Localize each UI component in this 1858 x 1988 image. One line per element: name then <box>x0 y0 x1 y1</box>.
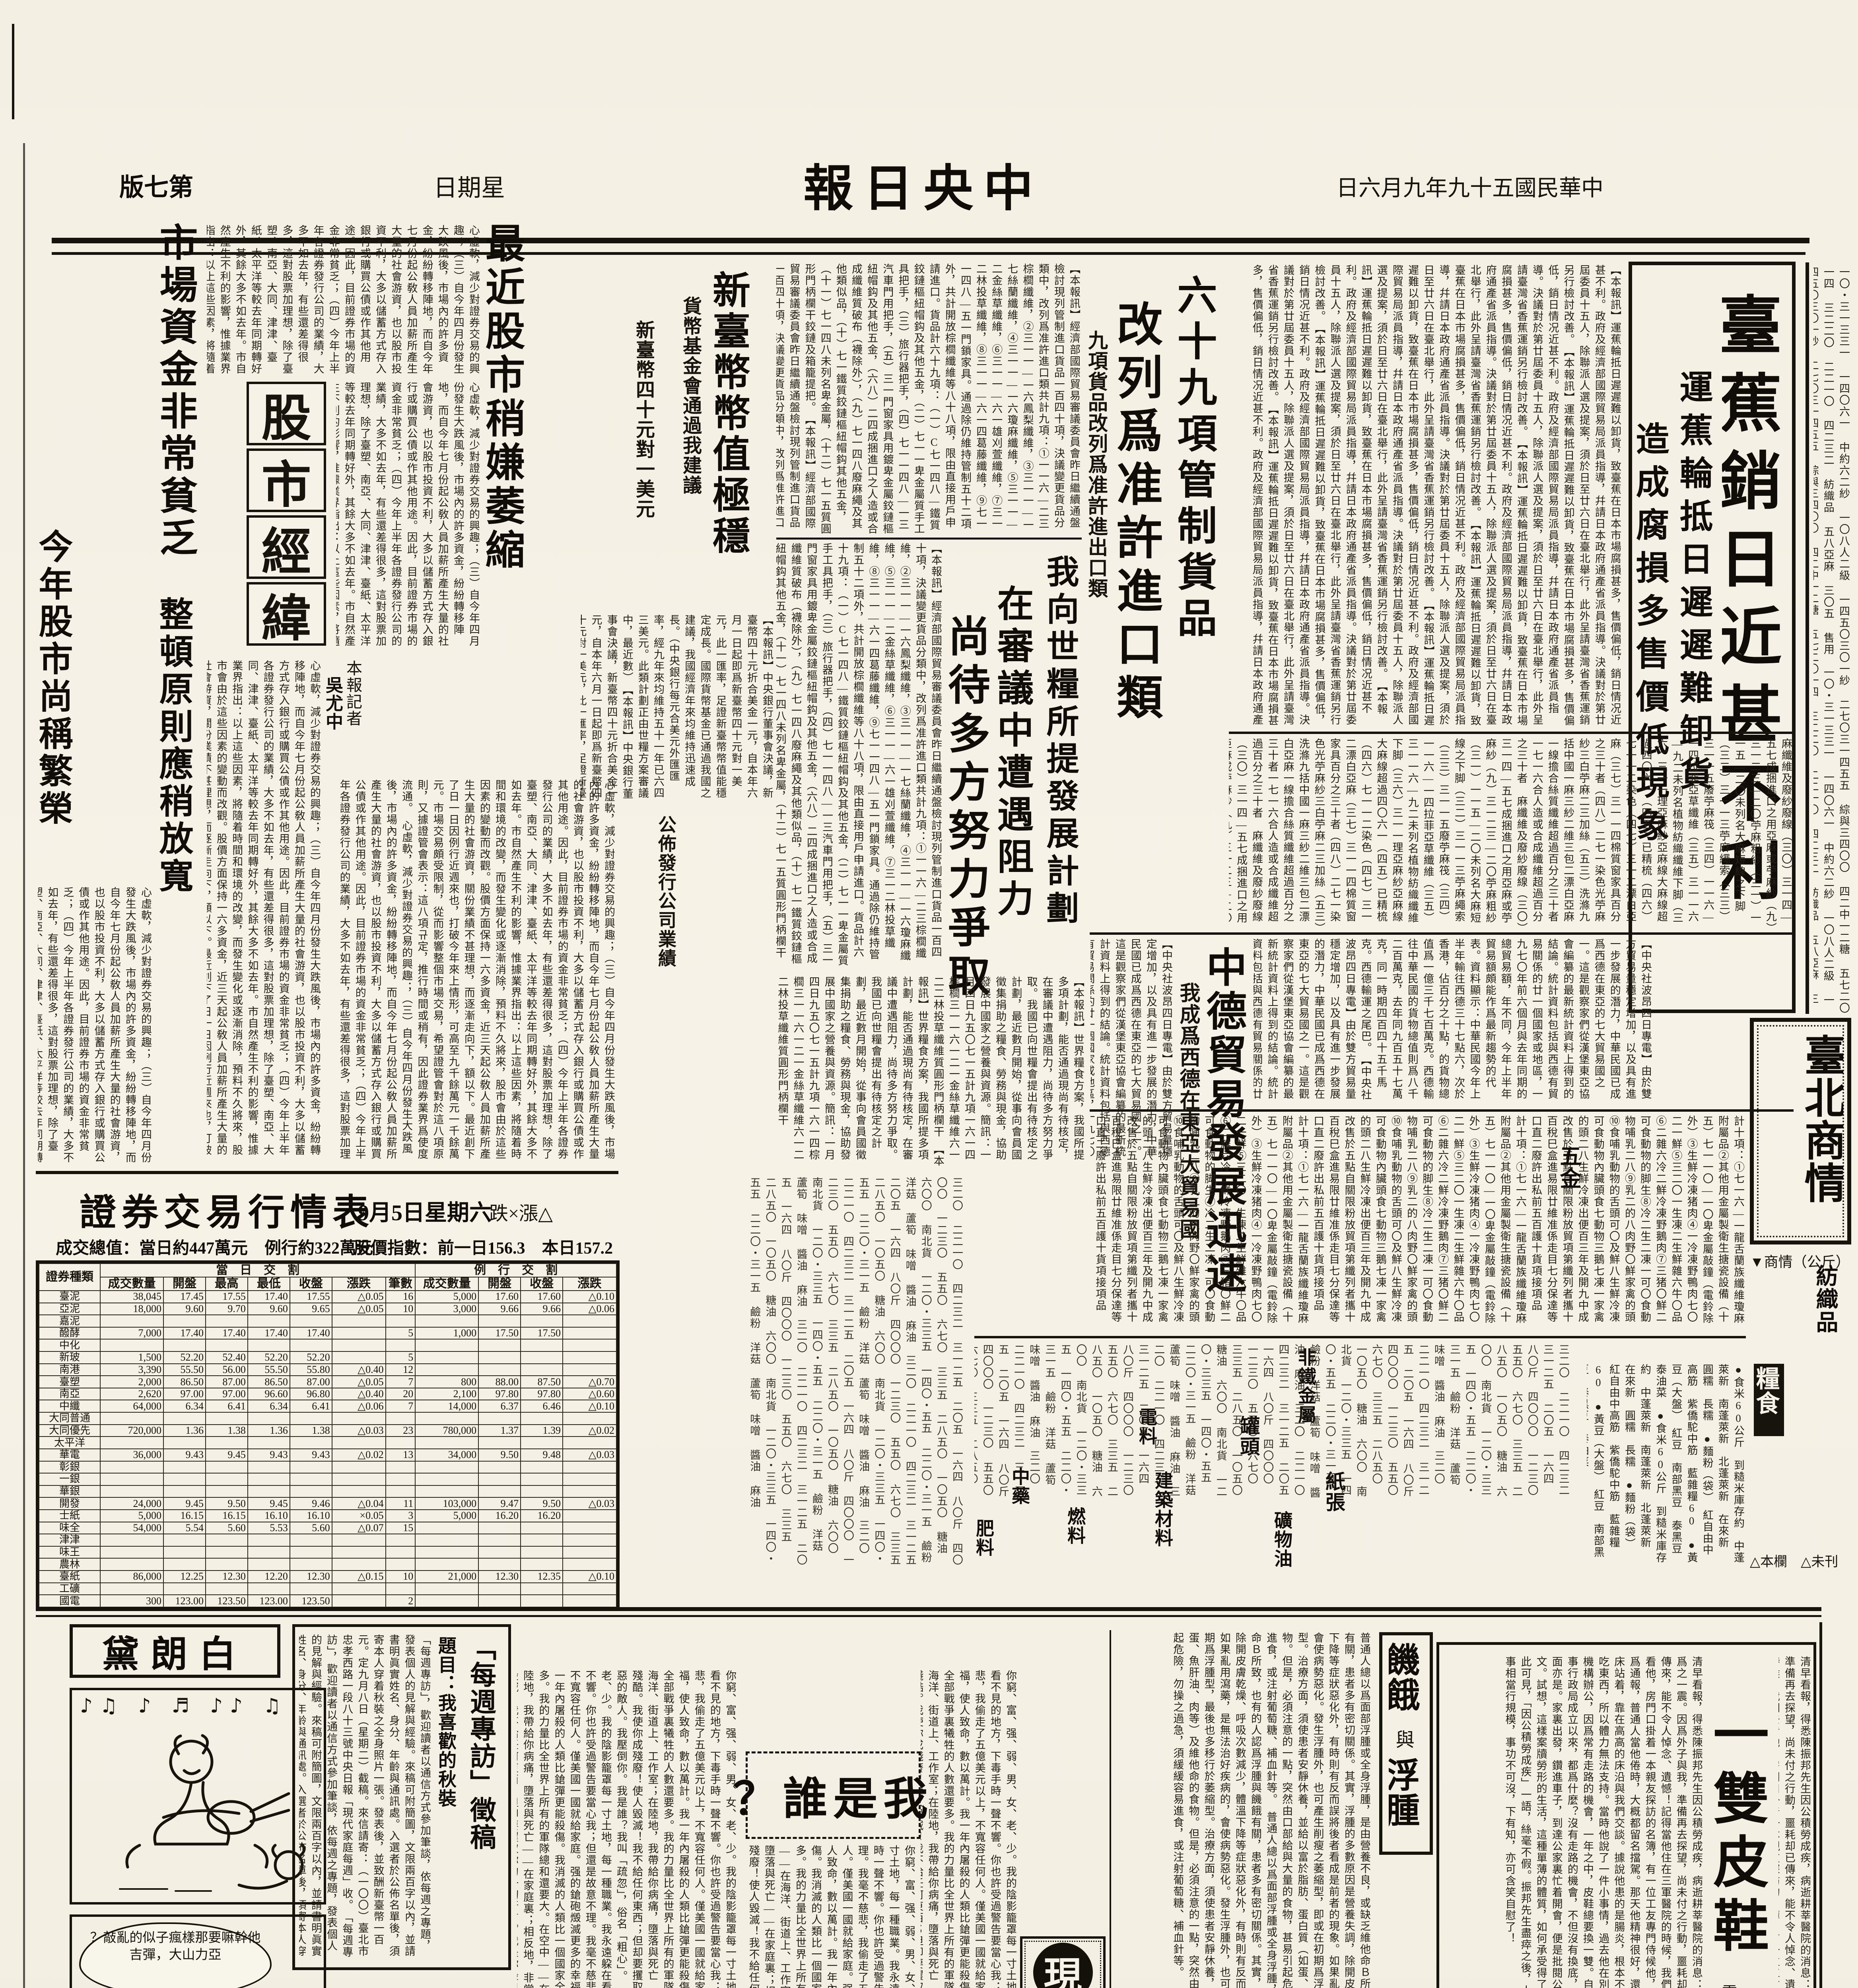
security-name: 彰銀 <box>39 1461 100 1474</box>
open2 <box>478 1534 521 1546</box>
open2: 6.37 <box>478 1400 521 1412</box>
trades <box>386 1473 416 1485</box>
speech-bubble-1: ？敲亂的似子瘋樣那要嘛幹他吉彈，大山力亞 <box>79 1922 272 1988</box>
low: 1.36 <box>248 1425 290 1437</box>
volume2: 14,000 <box>415 1400 478 1412</box>
change2 <box>563 1351 616 1364</box>
open2 <box>478 1558 521 1571</box>
trades <box>386 1412 416 1425</box>
open2 <box>478 1461 521 1474</box>
close2 <box>521 1473 563 1485</box>
security-name: 新玻 <box>39 1351 100 1364</box>
change2: △0.70 <box>563 1376 616 1388</box>
security-name: 太平洋 <box>39 1437 100 1449</box>
security-name: 味全 <box>39 1522 100 1534</box>
high <box>206 1461 248 1474</box>
volume <box>100 1546 163 1559</box>
col-volume: 成交數量 <box>100 1277 163 1291</box>
whoami-col-right: 你窮、富、强、弱、男、女、老、少。我的陰影籠罩每一寸土地，每一種職業。我永遠躱在… <box>921 1670 1018 1988</box>
high: 52.40 <box>206 1351 248 1364</box>
band-rule-2 <box>1090 932 1794 935</box>
volume2: 34,000 <box>415 1449 478 1461</box>
high <box>206 1558 248 1571</box>
volume: 86,000 <box>100 1571 163 1583</box>
import69-headline-2: 改列爲准許進口類 <box>1113 300 1168 742</box>
open2 <box>478 1351 521 1364</box>
volume: 38,045 <box>100 1291 163 1303</box>
volume: 7,000 <box>100 1327 163 1340</box>
stock-body-5: 心虛軟，減少對證券交易的興趣；（三）自今年四月份發生大跌風後，市場內的許多資金，… <box>336 779 616 1165</box>
security-name: 南港 <box>39 1364 100 1376</box>
change <box>332 1315 386 1327</box>
stock-headline-right-1: 最近股市稍嫌萎縮 <box>483 223 530 580</box>
change: △0.04 <box>332 1497 386 1510</box>
worldfood-body: 【本報訊】世界糧食方案，我國所提多項計劃，能否通過現尚有待核定，在審議中遭遇阻力… <box>776 976 1086 1167</box>
change: △0.15 <box>332 1571 386 1583</box>
high: 1.38 <box>206 1425 248 1437</box>
open <box>163 1558 206 1571</box>
blondie-title-box: 黛朗白 <box>70 1624 280 1678</box>
features-rule-b <box>36 1615 1821 1617</box>
low: 17.40 <box>248 1327 290 1340</box>
change: △0.05 <box>332 1291 386 1303</box>
table-row: 味王 <box>39 1546 616 1559</box>
volume <box>100 1412 163 1425</box>
open2: 17.60 <box>478 1291 521 1303</box>
close: 9.65 <box>290 1303 332 1315</box>
change2: △0.60 <box>563 1388 616 1400</box>
col-open: 開盤 <box>163 1277 206 1291</box>
hunger-title-1: 饑餓 <box>1389 1642 1425 1730</box>
table-row: 中纖64,0006.346.416.346.41△0.06714,0006.37… <box>39 1400 616 1412</box>
change <box>332 1327 386 1340</box>
trades <box>386 1583 416 1595</box>
security-name: 亞泥 <box>39 1303 100 1315</box>
security-name: 農林 <box>39 1558 100 1571</box>
volume2 <box>415 1485 478 1498</box>
low: 96.60 <box>248 1388 290 1400</box>
table-header-row: 成交數量 開盤 最高 最低 收盤 漲跌 筆數 成交數量 開盤 收盤 漲跌 <box>39 1277 616 1291</box>
change <box>332 1534 386 1546</box>
close2 <box>521 1412 563 1425</box>
band-rule-3 <box>1090 1109 1794 1112</box>
close: 123.50 <box>290 1595 332 1607</box>
volume2 <box>415 1583 478 1595</box>
volume2: 103,000 <box>415 1497 478 1510</box>
volume: 720,000 <box>100 1425 163 1437</box>
high: 9.70 <box>206 1303 248 1315</box>
open2: 88.00 <box>478 1376 521 1388</box>
trades: 7 <box>386 1400 416 1412</box>
security-name: 一銀 <box>39 1473 100 1485</box>
close2 <box>521 1315 563 1327</box>
volume: 18,000 <box>100 1303 163 1315</box>
edition-label: 版七第 <box>119 167 193 203</box>
low <box>248 1315 290 1327</box>
stock-table-body: 臺泥38,04517.4517.5517.4017.55△0.05165,000… <box>39 1291 616 1607</box>
table-row: 臺塑2,00086.5087.0086.5087.00△0.05780088.0… <box>39 1376 616 1388</box>
high: 97.00 <box>206 1388 248 1400</box>
stock-headline-left-2: 今年股市尚稱繁榮 <box>38 529 78 879</box>
change <box>332 1485 386 1498</box>
open2: 9.50 <box>478 1449 521 1461</box>
close: 96.80 <box>290 1388 332 1400</box>
table-row: 中化 <box>39 1339 616 1351</box>
open: 12.25 <box>163 1571 206 1583</box>
trades: 5 <box>386 1351 416 1364</box>
volume: 5,000 <box>100 1510 163 1522</box>
whoami-title: ？誰是我 <box>733 1763 933 1827</box>
security-name: 津津 <box>39 1534 100 1546</box>
trades: 10 <box>386 1303 416 1315</box>
high: 9.45 <box>206 1449 248 1461</box>
close <box>290 1412 332 1425</box>
high: 123.50 <box>206 1595 248 1607</box>
change <box>332 1412 386 1425</box>
volume2 <box>415 1473 478 1485</box>
category-hardware: 五金 <box>1559 1145 1584 1205</box>
blondie-title: 黛朗白 <box>102 1625 248 1677</box>
import69-subhead: 九項貨品改列爲准許進出口類 <box>1087 330 1111 751</box>
low: 55.50 <box>248 1364 290 1376</box>
close2 <box>521 1595 563 1607</box>
high <box>206 1315 248 1327</box>
stock-table-legend: 跌×漲△ <box>489 1198 553 1225</box>
volume2: 780,000 <box>415 1425 478 1437</box>
high: 17.40 <box>206 1327 248 1340</box>
open2 <box>478 1522 521 1534</box>
change <box>332 1339 386 1351</box>
open <box>163 1473 206 1485</box>
close: 6.41 <box>290 1400 332 1412</box>
features-rule-a <box>36 1607 1821 1611</box>
change2 <box>563 1595 616 1607</box>
close: 9.43 <box>290 1449 332 1461</box>
volume2: 2,100 <box>415 1388 478 1400</box>
table-row: 國電300123.00123.50123.00123.502 <box>39 1595 616 1607</box>
close2: 6.46 <box>521 1400 563 1412</box>
high <box>206 1339 248 1351</box>
low: 9.60 <box>248 1303 290 1315</box>
table-row: 臺泥38,04517.4517.5517.4017.55△0.05165,000… <box>39 1291 616 1303</box>
stock-box-char-1: 股 <box>247 382 326 445</box>
open: 86.50 <box>163 1376 206 1388</box>
worldfood-headline-3: 尚待多方努力爭取 <box>948 614 995 1016</box>
worldfood-headline-2: 在審議中遭遇阻力 <box>997 584 1039 950</box>
volume2 <box>415 1558 478 1571</box>
col-change2: 漲跌 <box>563 1277 616 1291</box>
close2 <box>521 1546 563 1559</box>
open <box>163 1339 206 1351</box>
open2 <box>478 1546 521 1559</box>
high <box>206 1473 248 1485</box>
trades <box>386 1534 416 1546</box>
shoes-col-first: 清早看報，得悉陳振邦先生因公積勞成疾，病逝耕莘醫院的消息：心爲之一震。因爲外子與… <box>1778 1656 1812 1988</box>
table-row: 南亞2,62097.0097.0096.6096.80△0.40202,1009… <box>39 1388 616 1400</box>
hunger-title-mid: 與 <box>1397 1730 1417 1753</box>
close <box>290 1485 332 1498</box>
change <box>332 1546 386 1559</box>
scan-edge-mark <box>12 24 14 119</box>
import69-list3-band: 計十項：①七一六—一龍舌蘭族纖維瓊麻附屬品②其他用金屬製衛生搪瓷設備（十五）七一… <box>1090 1115 1746 1332</box>
table-row: 士紙5,00016.1516.1516.1016.10×0.0535,00016… <box>39 1510 616 1522</box>
change2 <box>563 1522 616 1534</box>
volume2: 3,000 <box>415 1303 478 1315</box>
open2 <box>478 1583 521 1595</box>
close2 <box>521 1534 563 1546</box>
close2 <box>521 1351 563 1364</box>
low: 9.43 <box>248 1449 290 1461</box>
table-row: 醱酵7,00017.4017.4017.4017.4051,00017.5017… <box>39 1327 616 1340</box>
security-name: 臺紙 <box>39 1571 100 1583</box>
volume2: 5,000 <box>415 1510 478 1522</box>
close: 9.46 <box>290 1497 332 1510</box>
open: 5.54 <box>163 1522 206 1534</box>
open: 17.45 <box>163 1291 206 1303</box>
high <box>206 1412 248 1425</box>
hunger-body: 普通人總以爲面部浮腫或全身浮腫，是由營養不良，或缺乏維他命Ｂ所致，也有的人認爲浮… <box>1114 1632 1372 1988</box>
volume2: 1,000 <box>415 1327 478 1340</box>
right-edge-rule <box>1806 262 1809 1014</box>
date-label: 日六月九年九十五國民華中 <box>1336 170 1603 202</box>
col-change: 漲跌 <box>332 1277 386 1291</box>
close2 <box>521 1485 563 1498</box>
low: 5.53 <box>248 1522 290 1534</box>
open: 9.60 <box>163 1303 206 1315</box>
open: 6.34 <box>163 1400 206 1412</box>
weekday-label: 日期星 <box>433 169 505 203</box>
change: △0.05 <box>332 1303 386 1315</box>
trades <box>386 1461 416 1474</box>
table-row: 大同優先720,0001.361.381.361.38△0.0323780,00… <box>39 1425 616 1437</box>
security-name: 味王 <box>39 1546 100 1559</box>
stock-column-title-box: 股 市 經 緯 <box>247 382 331 652</box>
change <box>332 1473 386 1485</box>
change2: △0.06 <box>563 1303 616 1315</box>
high <box>206 1437 248 1449</box>
col-open2: 開盤 <box>478 1277 521 1291</box>
volume2: 800 <box>415 1376 478 1388</box>
change <box>332 1583 386 1595</box>
open2 <box>478 1339 521 1351</box>
security-name: 中化 <box>39 1339 100 1351</box>
close: 12.30 <box>290 1571 332 1583</box>
table-row: 太平洋 <box>39 1437 616 1449</box>
trades <box>386 1437 416 1449</box>
volume2 <box>415 1351 478 1364</box>
change2 <box>563 1546 616 1559</box>
change2 <box>563 1364 616 1376</box>
stock-table: 證券種類 當 日 交 割 例 行 交 割 成交數量 開盤 最高 最低 收盤 漲跌… <box>36 1260 620 1610</box>
security-name: 華銀 <box>39 1485 100 1498</box>
volume <box>100 1485 163 1498</box>
open: 1.36 <box>163 1425 206 1437</box>
comic-panel-2: ？敲亂的似子瘋樣那要嘛幹他吉彈，大山力亞 <box>70 1914 326 1988</box>
security-name: 華電 <box>39 1449 100 1461</box>
open2 <box>478 1315 521 1327</box>
change2 <box>563 1473 616 1485</box>
features-right-edge <box>1819 1622 1822 1988</box>
low <box>248 1583 290 1595</box>
change <box>332 1351 386 1364</box>
group-same-day: 當 日 交 割 <box>100 1264 415 1277</box>
stock-body-3: 心虛軟，減少對證券交易的興趣；（三）自今年四月份發生大跌風後，市場內的許多資金，… <box>207 660 322 1165</box>
essay-call-title: 「每週專訪」徵稿 <box>464 1634 499 1960</box>
col-trades: 筆數 <box>386 1277 416 1291</box>
high <box>206 1583 248 1595</box>
table-row: 津津 <box>39 1534 616 1546</box>
change2: △0.10 <box>563 1291 616 1303</box>
open2: 97.80 <box>478 1388 521 1400</box>
high <box>206 1546 248 1559</box>
trades: 5 <box>386 1327 416 1340</box>
trades <box>386 1546 416 1559</box>
change2 <box>563 1412 616 1425</box>
chinagermany-body-right: 【中央社波昂四日專電】由於雙方貿易量穩定增加，以及具有進一步發展的潛力，中華民國… <box>1254 938 1653 1107</box>
security-name: 臺泥 <box>39 1291 100 1303</box>
volume: 54,000 <box>100 1522 163 1534</box>
whoami-title-box: ？誰是我 <box>746 1751 921 1839</box>
change2 <box>563 1437 616 1449</box>
close2: 9.66 <box>521 1303 563 1315</box>
table-row: 亞泥18,0009.609.709.609.65△0.05103,0009.66… <box>39 1303 616 1315</box>
stock-body-2: 心虛軟，減少對證券交易的興趣；（三）自今年四月份發生大跌風後，市場內的許多資金，… <box>336 382 481 652</box>
high: 12.30 <box>206 1571 248 1583</box>
security-name: 中纖 <box>39 1400 100 1412</box>
stock-box-char-2: 市 <box>247 448 326 512</box>
close2 <box>521 1461 563 1474</box>
volume2 <box>415 1461 478 1474</box>
col-high: 最高 <box>206 1277 248 1291</box>
change: △0.06 <box>332 1400 386 1412</box>
category-fuel: 燃料 <box>1066 1507 1088 1559</box>
low <box>248 1339 290 1351</box>
category-grain: 糧食 <box>1754 1364 1784 1436</box>
table-row: 開發24,0009.459.509.459.46△0.0411103,0009.… <box>39 1497 616 1510</box>
music-notes: ♪♫ ♪ ♬ ♪♪ ♫ <box>80 1694 288 1717</box>
low <box>248 1437 290 1449</box>
close <box>290 1546 332 1559</box>
essay-call-body: 「每週專訪」，歡迎讀者以通信方式參加筆談，依每週之專題，發表個人的見解與經驗。來… <box>299 1634 432 1960</box>
close <box>290 1534 332 1546</box>
security-name: 開發 <box>39 1497 100 1510</box>
open2: 16.20 <box>478 1510 521 1522</box>
security-name: 嘉泥 <box>39 1315 100 1327</box>
change2 <box>563 1583 616 1595</box>
table-top-rule <box>36 1171 618 1174</box>
close2: 17.50 <box>521 1327 563 1340</box>
change <box>332 1437 386 1449</box>
change2: △0.03 <box>563 1497 616 1510</box>
low <box>248 1546 290 1559</box>
open <box>163 1534 206 1546</box>
col-low: 最低 <box>248 1277 290 1291</box>
security-name: 國電 <box>39 1595 100 1607</box>
volume2 <box>415 1437 478 1449</box>
volume: 1,500 <box>100 1351 163 1364</box>
change: ×0.05 <box>332 1510 386 1522</box>
newspaper-title: 報日央中 <box>803 148 1044 220</box>
open2 <box>478 1412 521 1425</box>
table-row: 華電36,0009.439.459.439.43△0.021334,0009.5… <box>39 1449 616 1461</box>
trades: 15 <box>386 1522 416 1534</box>
low <box>248 1461 290 1474</box>
ntdollar-subhead-2: 新臺幣四十元對一美元 <box>634 320 657 606</box>
whoami-col-left: 你窮、富、强、弱、男、女、老、少。我的陰影籠罩每一寸土地，每一種職業。我永遠躱在… <box>517 1670 738 1988</box>
open <box>163 1315 206 1327</box>
security-name: 大同普通 <box>39 1412 100 1425</box>
change: △0.05 <box>332 1376 386 1388</box>
open: 9.43 <box>163 1449 206 1461</box>
open <box>163 1412 206 1425</box>
stock-box-char-4: 緯 <box>247 582 326 646</box>
low: 16.10 <box>248 1510 290 1522</box>
low <box>248 1485 290 1498</box>
close2 <box>521 1558 563 1571</box>
stock-quotes-table: 證券種類 當 日 交 割 例 行 交 割 成交數量 開盤 最高 最低 收盤 漲跌… <box>39 1263 617 1607</box>
open2 <box>478 1437 521 1449</box>
close: 52.20 <box>290 1351 332 1364</box>
volume: 36,000 <box>100 1449 163 1461</box>
volume: 300 <box>100 1595 163 1607</box>
trades: 11 <box>386 1497 416 1510</box>
open2: 12.30 <box>478 1571 521 1583</box>
open: 97.00 <box>163 1388 206 1400</box>
table-row: 一銀 <box>39 1473 616 1485</box>
stock-table-title: 證券交易行情表 <box>80 1183 375 1236</box>
close: 87.00 <box>290 1376 332 1388</box>
close <box>290 1461 332 1474</box>
close <box>290 1437 332 1449</box>
import69-rule-1 <box>776 538 1082 540</box>
taipei-logo: 臺北商情 <box>1760 1034 1843 1229</box>
change2 <box>563 1485 616 1498</box>
volume: 2,000 <box>100 1376 163 1388</box>
volume <box>100 1558 163 1571</box>
trades <box>386 1315 416 1327</box>
low: 9.45 <box>248 1497 290 1510</box>
stock-body-4: 心虛軟，減少對證券交易的興趣；（三）自今年四月份發生大跌風後，市場內的許多資金，… <box>38 887 153 1165</box>
stock-table-totals: 成交總值：當日約447萬元 例行約322萬元 <box>56 1235 373 1259</box>
close2: 9.50 <box>521 1497 563 1510</box>
close <box>290 1339 332 1351</box>
stock-headline-right-2: 市場資金非常貧乏 <box>158 223 203 580</box>
trades: 13 <box>386 1449 416 1461</box>
stock-byline-label: 本報記者 <box>347 660 364 763</box>
close2 <box>521 1364 563 1376</box>
table-group-row: 證券種類 當 日 交 割 例 行 交 割 <box>39 1264 616 1277</box>
trades: 10 <box>386 1571 416 1583</box>
high: 16.15 <box>206 1510 248 1522</box>
trades: 16 <box>386 1291 416 1303</box>
open2: 9.66 <box>478 1303 521 1315</box>
change <box>332 1595 386 1607</box>
open: 123.00 <box>163 1595 206 1607</box>
close2: 17.60 <box>521 1291 563 1303</box>
table-row: 嘉泥 <box>39 1315 616 1327</box>
security-name: 醱酵 <box>39 1327 100 1340</box>
table-row: 農林 <box>39 1558 616 1571</box>
open2 <box>478 1473 521 1485</box>
change: △0.40 <box>332 1364 386 1376</box>
open2 <box>478 1485 521 1498</box>
close2: 87.50 <box>521 1376 563 1388</box>
table-row: 臺紙86,00012.2512.3012.2012.30△0.151021,00… <box>39 1571 616 1583</box>
category-mineral-oil: 礦物油 <box>1273 1511 1295 1578</box>
volume2: 21,000 <box>415 1571 478 1583</box>
volume2 <box>415 1412 478 1425</box>
left-page-border <box>23 143 25 1988</box>
